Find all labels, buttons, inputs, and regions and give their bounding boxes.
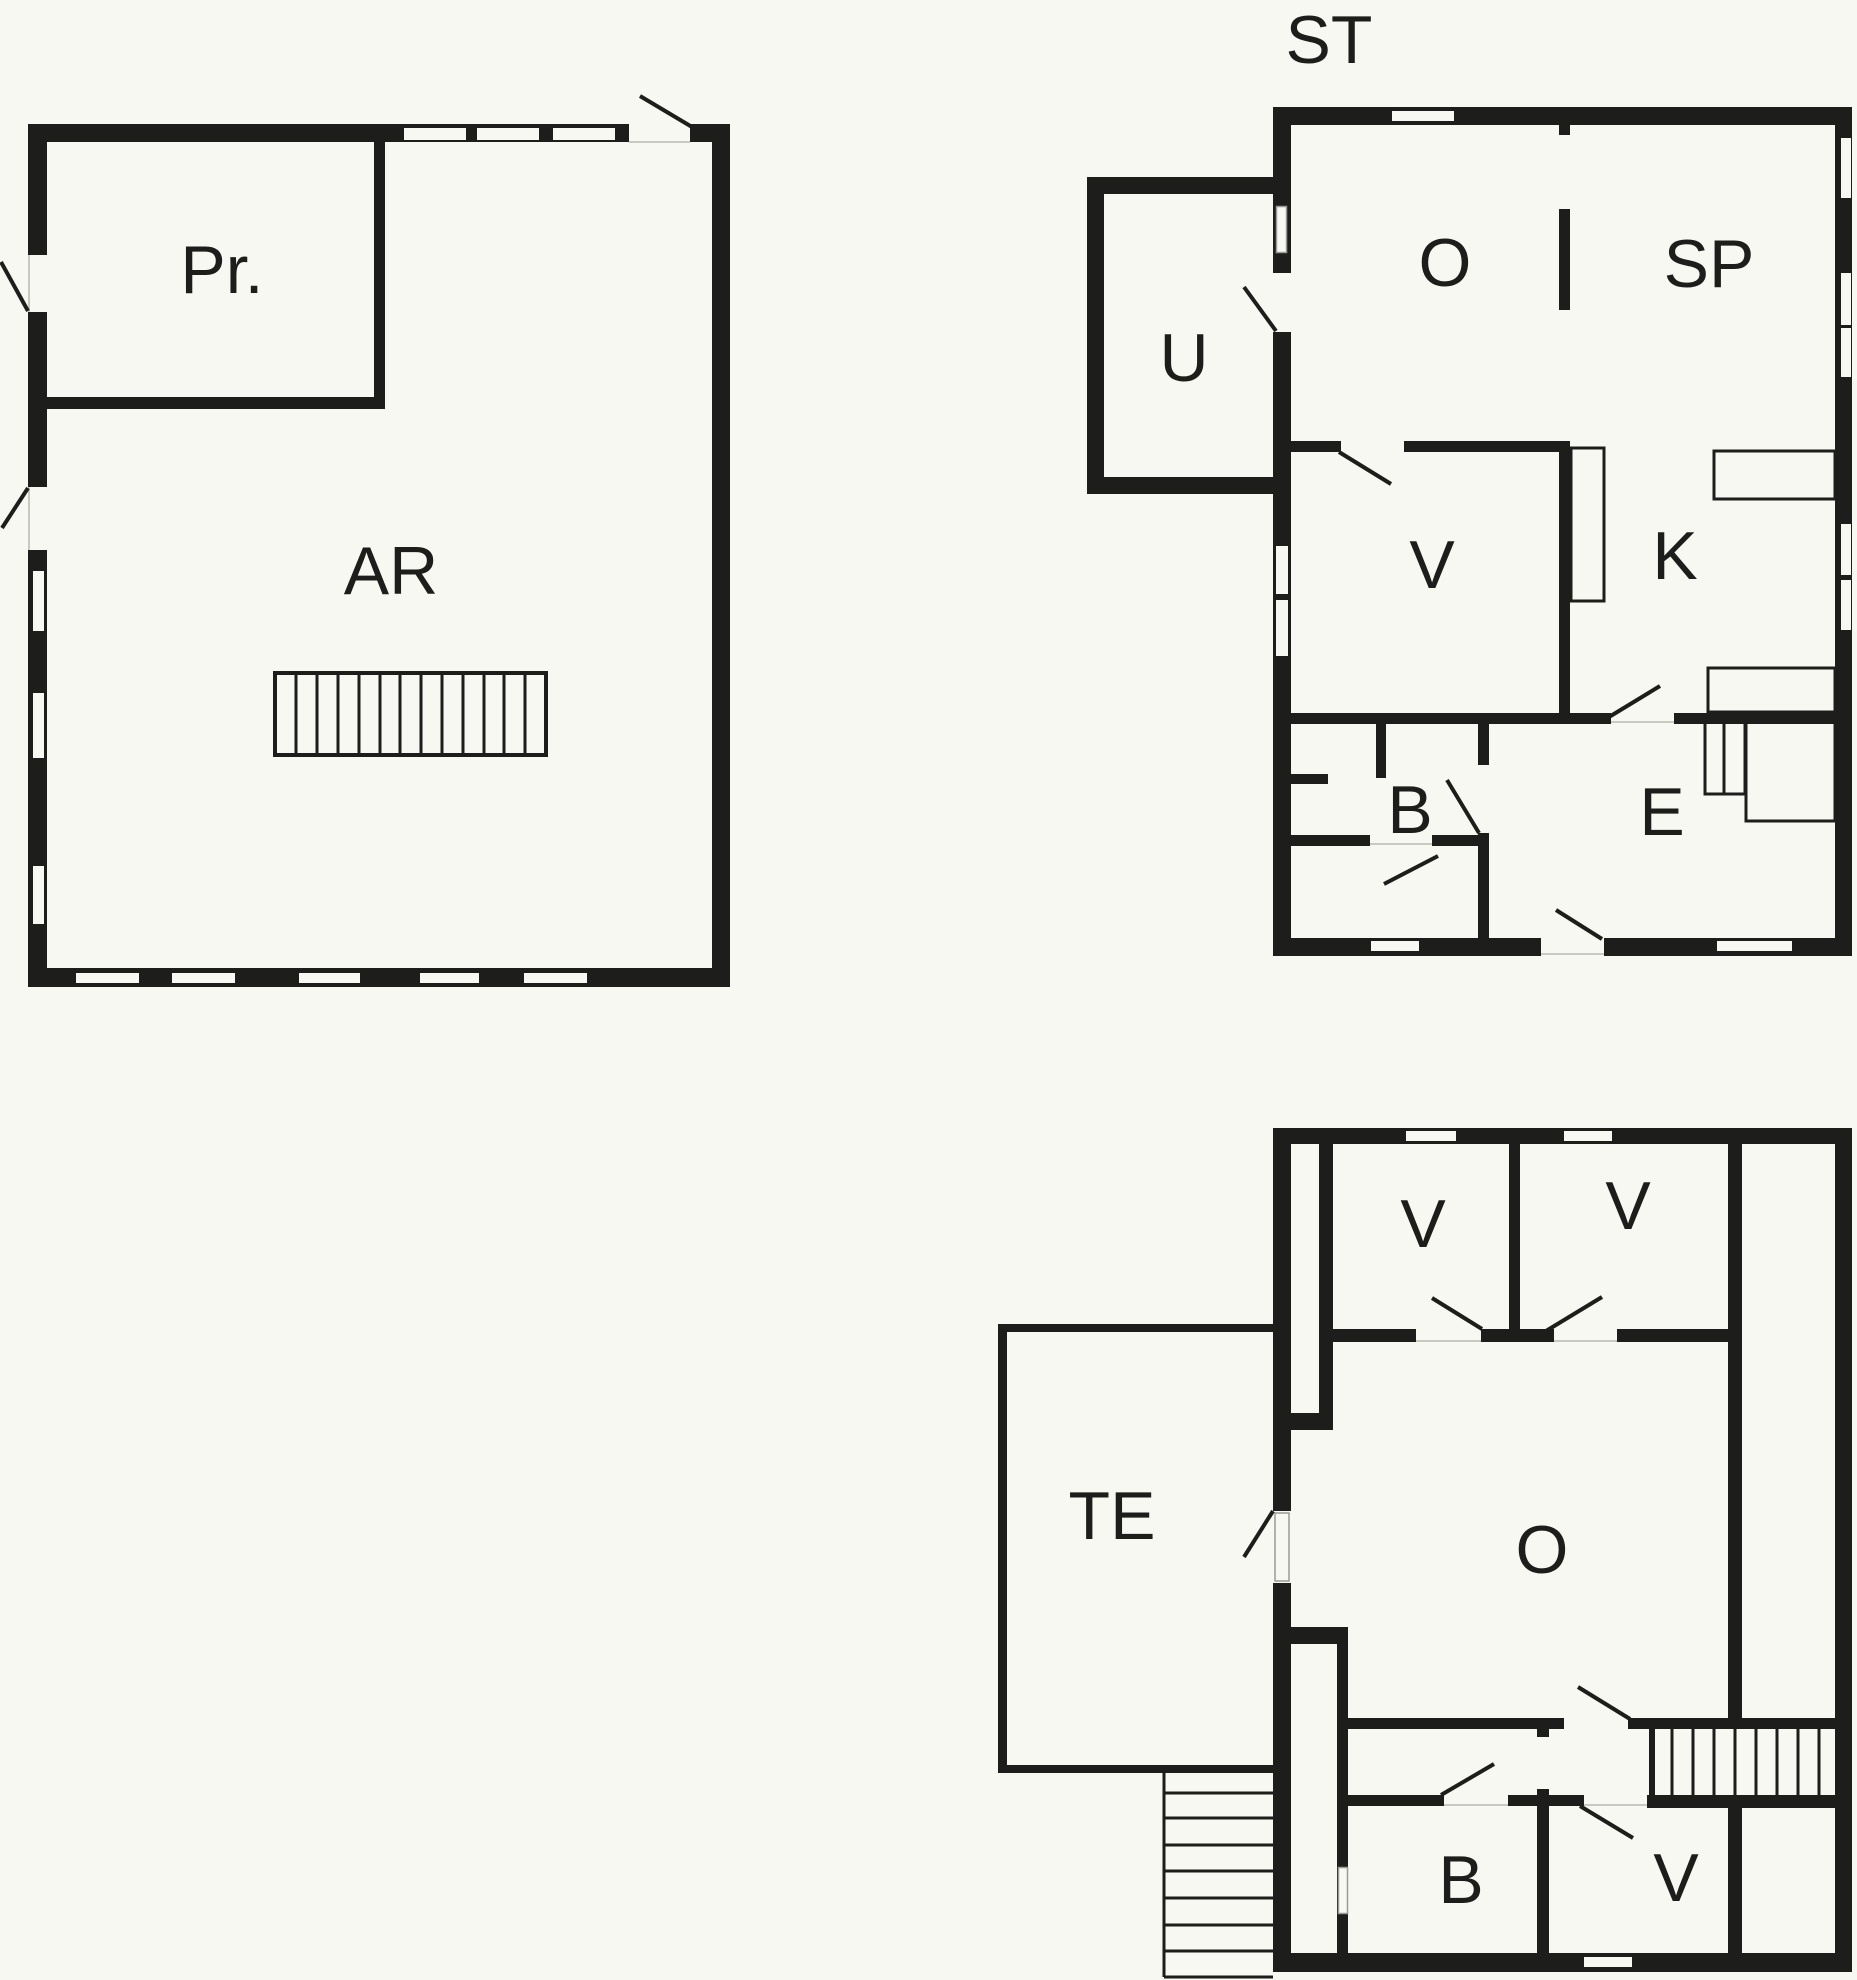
svg-text:TE: TE <box>1069 1478 1156 1554</box>
svg-text:O: O <box>1419 225 1472 301</box>
svg-text:B: B <box>1387 772 1432 848</box>
svg-text:E: E <box>1639 774 1684 850</box>
svg-text:V: V <box>1409 527 1455 603</box>
svg-text:K: K <box>1652 518 1697 594</box>
svg-text:V: V <box>1605 1168 1651 1244</box>
svg-text:SP: SP <box>1664 226 1755 302</box>
svg-text:V: V <box>1653 1840 1699 1916</box>
svg-text:V: V <box>1400 1186 1446 1262</box>
svg-text:U: U <box>1159 320 1208 396</box>
svg-text:AR: AR <box>344 533 438 609</box>
svg-text:B: B <box>1438 1842 1483 1918</box>
svg-text:O: O <box>1516 1512 1569 1588</box>
svg-text:Pr.: Pr. <box>180 232 263 308</box>
svg-text:ST: ST <box>1286 2 1373 78</box>
